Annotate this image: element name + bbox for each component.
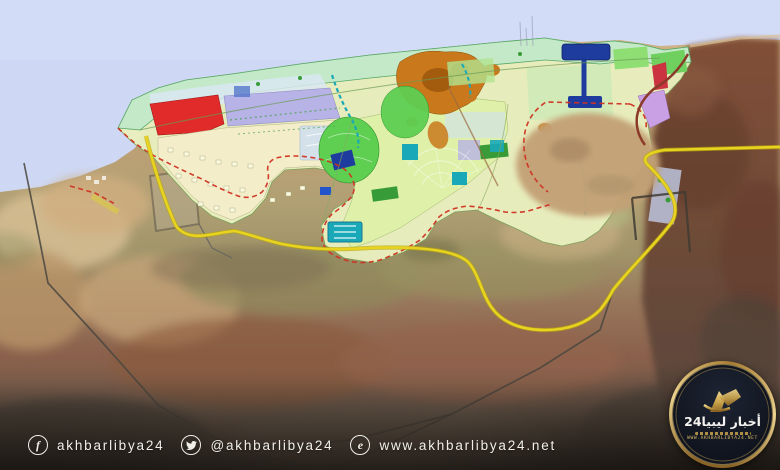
logo-title-arabic: أخبار ليبيا24 [684,416,761,429]
website-link: e www.akhbarlibya24.net [350,435,556,455]
website-url-text: www.akhbarlibya24.net [379,438,556,453]
web-icon: e [350,435,370,455]
logo-tagline-line [695,432,751,435]
pale-grid-block [445,112,505,138]
bottom-shade [0,380,780,470]
facebook-handle-text: akhbarlibya24 [57,438,164,453]
akhbarlibya24-logo: أخبار ليبيا24 WWW.AKHBARLIBYA24.NET [669,361,776,468]
city-masterplan-satellite-map [0,0,780,470]
logo-website-text: WWW.AKHBARLIBYA24.NET [687,437,758,442]
twitter-handle-text: @akhbarlibya24 [210,438,333,453]
facebook-handle: f akhbarlibya24 [28,435,164,455]
twitter-handle: @akhbarlibya24 [181,435,333,455]
blue-gray-block [234,86,250,97]
logo-emblem-icon [700,387,746,414]
twitter-icon [181,435,201,455]
pond-blue [320,187,331,195]
facebook-icon: f [28,435,48,455]
watermark-social-bar: f akhbarlibya24 @akhbarlibya24 e www.akh… [28,435,556,455]
news-watermarked-map-image: f akhbarlibya24 @akhbarlibya24 e www.akh… [0,0,780,470]
logo-inner-disc: أخبار ليبيا24 WWW.AKHBARLIBYA24.NET [672,364,773,465]
